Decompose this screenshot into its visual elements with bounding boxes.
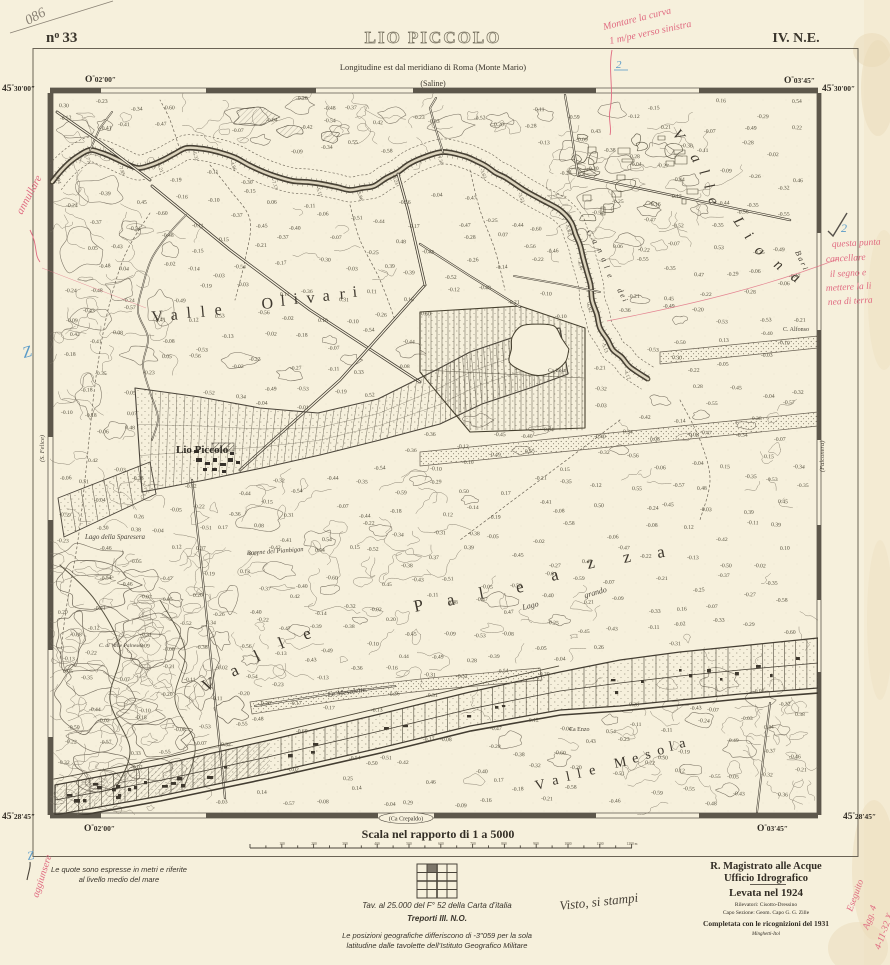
svg-text:-0.38: -0.38: [196, 645, 208, 651]
svg-text:-0.31: -0.31: [426, 693, 438, 699]
svg-text:-0.51: -0.51: [442, 576, 454, 583]
svg-text:-0.19: -0.19: [200, 283, 212, 290]
svg-text:0.36: 0.36: [778, 792, 788, 799]
svg-text:-0.21: -0.21: [535, 476, 547, 482]
svg-text:-0.11: -0.11: [211, 696, 223, 702]
svg-text:-0.54: -0.54: [374, 465, 386, 472]
svg-text:-0.52: -0.52: [474, 115, 486, 122]
svg-text:-0.36: -0.36: [681, 143, 693, 150]
svg-text:-0.33: -0.33: [428, 119, 440, 125]
svg-text:-0.03: -0.03: [213, 273, 225, 279]
svg-text:-0.57: -0.57: [100, 739, 112, 746]
svg-text:-0.34: -0.34: [793, 464, 805, 471]
svg-text:-0.50: -0.50: [674, 340, 686, 346]
svg-text:-0.55: -0.55: [637, 257, 649, 263]
svg-text:O°02′00″: O°02′00″: [84, 823, 115, 834]
svg-text:-0.03: -0.03: [595, 403, 607, 409]
svg-text:-0.11: -0.11: [697, 148, 709, 154]
svg-text:0.50: 0.50: [594, 503, 604, 509]
svg-text:-0.18: -0.18: [64, 352, 76, 358]
svg-text:-0.41: -0.41: [154, 317, 166, 324]
svg-text:-0.03: -0.03: [237, 282, 249, 288]
svg-text:0.54: 0.54: [315, 548, 325, 554]
svg-text:-0.60: -0.60: [296, 729, 308, 735]
svg-text:-0.05: -0.05: [481, 584, 493, 591]
svg-text:-0.13: -0.13: [317, 675, 329, 681]
svg-text:-0.05: -0.05: [124, 390, 136, 397]
svg-text:-0.12: -0.12: [628, 114, 640, 120]
svg-text:-0.22: -0.22: [700, 292, 712, 298]
svg-text:-0.14: -0.14: [467, 505, 479, 511]
svg-text:0.10: 0.10: [318, 318, 328, 324]
svg-text:-0.09: -0.09: [576, 137, 588, 143]
svg-text:-0.47: -0.47: [476, 597, 488, 603]
svg-text:-0.38: -0.38: [343, 624, 355, 630]
svg-text:-0.23: -0.23: [143, 370, 155, 376]
svg-text:-0.10: -0.10: [555, 314, 567, 320]
svg-text:0.15: 0.15: [219, 237, 229, 243]
svg-text:0.46: 0.46: [793, 178, 803, 184]
svg-text:0.34: 0.34: [206, 620, 216, 627]
svg-text:-0.08: -0.08: [646, 523, 658, 529]
svg-text:0.07: 0.07: [197, 741, 207, 747]
svg-text:-0.17: -0.17: [423, 736, 435, 743]
svg-text:0.31: 0.31: [284, 512, 294, 519]
svg-text:-0.22: -0.22: [193, 504, 205, 510]
svg-text:-0.19: -0.19: [489, 515, 501, 521]
svg-text:(Saline): (Saline): [420, 79, 446, 88]
svg-text:cancellare: cancellare: [826, 253, 866, 265]
svg-text:-0.11: -0.11: [630, 722, 642, 728]
svg-text:-0.31: -0.31: [669, 641, 681, 647]
svg-text:-0.43: -0.43: [690, 705, 702, 712]
svg-text:-0.02: -0.02: [232, 364, 244, 370]
svg-text:0.06: 0.06: [267, 200, 277, 206]
svg-text:-0.05: -0.05: [161, 597, 173, 603]
svg-text:-0.49: -0.49: [489, 452, 501, 458]
svg-text:-0.45: -0.45: [512, 553, 524, 559]
svg-text:-0.19: -0.19: [170, 177, 182, 184]
svg-text:-0.07: -0.07: [603, 580, 615, 586]
svg-text:0.10: 0.10: [780, 546, 790, 552]
svg-text:-0.44: -0.44: [89, 707, 101, 713]
svg-text:-0.57: -0.57: [673, 483, 685, 489]
svg-text:1100: 1100: [596, 842, 603, 846]
svg-text:-0.43: -0.43: [606, 626, 618, 633]
svg-text:-0.06: -0.06: [60, 475, 72, 482]
svg-text:900: 900: [533, 842, 539, 846]
svg-text:-0.40: -0.40: [761, 331, 773, 337]
svg-text:-0.35: -0.35: [747, 203, 759, 209]
svg-text:-0.07: -0.07: [328, 345, 340, 352]
svg-text:-0.23: -0.23: [57, 538, 69, 545]
svg-text:45°28′45″: 45°28′45″: [2, 811, 35, 822]
svg-text:no33: no33: [46, 30, 77, 46]
svg-text:0.11: 0.11: [367, 289, 377, 295]
svg-text:-0.40: -0.40: [250, 610, 262, 616]
svg-text:-0.13: -0.13: [371, 707, 383, 714]
svg-text:0.55: 0.55: [632, 486, 642, 492]
svg-text:0.07: 0.07: [120, 677, 130, 683]
svg-text:-0.43: -0.43: [412, 577, 424, 584]
svg-text:-0.46: -0.46: [609, 798, 621, 805]
svg-text:0.44: 0.44: [399, 654, 409, 660]
svg-text:-0.01: -0.01: [297, 405, 309, 411]
svg-text:-0.47: -0.47: [700, 430, 712, 437]
svg-text:Le posizioni geografiche diffe: Le posizioni geografiche differiscono di…: [342, 931, 532, 940]
svg-text:-0.38: -0.38: [401, 563, 413, 569]
svg-text:-0.14: -0.14: [674, 418, 686, 425]
svg-text:-0.28: -0.28: [744, 289, 756, 296]
svg-text:-0.13: -0.13: [275, 651, 287, 657]
svg-text:-0.44: -0.44: [403, 339, 415, 346]
svg-text:-0.24: -0.24: [66, 203, 78, 209]
svg-text:-0.57: -0.57: [783, 400, 795, 406]
svg-text:-0.08: -0.08: [163, 647, 175, 653]
svg-text:-0.30: -0.30: [97, 525, 109, 532]
svg-text:-0.52: -0.52: [180, 621, 192, 627]
svg-text:-0.60: -0.60: [554, 750, 566, 757]
svg-text:-0.35: -0.35: [560, 479, 572, 485]
svg-text:-0.20: -0.20: [570, 765, 582, 771]
svg-text:O°03′45″: O°03′45″: [784, 75, 815, 86]
svg-text:0.43: 0.43: [591, 129, 601, 135]
svg-text:-0.49: -0.49: [321, 648, 333, 654]
svg-text:-0.15: -0.15: [192, 248, 204, 255]
svg-text:-0.31: -0.31: [434, 530, 446, 537]
svg-text:-0.44: -0.44: [327, 476, 339, 482]
svg-text:-0.06: -0.06: [654, 465, 666, 471]
svg-text:0.21: 0.21: [584, 599, 594, 606]
svg-text:0.12: 0.12: [529, 717, 539, 724]
svg-text:-0.37: -0.37: [764, 748, 776, 755]
svg-text:-0.32: -0.32: [595, 386, 607, 393]
svg-text:-0.37: -0.37: [345, 105, 357, 111]
svg-text:-0.41: -0.41: [280, 538, 292, 544]
svg-text:-0.51: -0.51: [351, 215, 363, 222]
svg-text:-0.11: -0.11: [661, 728, 673, 734]
svg-text:Completata con le ricognizioni: Completata con le ricognizioni del 1931: [703, 919, 829, 928]
svg-text:Le quote sono espresse in metr: Le quote sono espresse in metri e riferi…: [51, 865, 187, 874]
svg-text:0.15: 0.15: [720, 464, 730, 471]
svg-text:800: 800: [501, 842, 507, 846]
svg-text:-0.18: -0.18: [81, 387, 93, 394]
svg-text:-0.01: -0.01: [545, 571, 557, 578]
svg-text:-0.18: -0.18: [512, 786, 524, 793]
svg-text:-0.48: -0.48: [705, 801, 717, 807]
svg-text:-0.10: -0.10: [347, 319, 359, 325]
svg-text:-0.17: -0.17: [275, 260, 287, 267]
svg-text:O°02′00″: O°02′00″: [85, 74, 116, 85]
svg-text:-0.52: -0.52: [367, 547, 379, 553]
svg-text:-0.22: -0.22: [65, 739, 77, 746]
svg-text:-0.28: -0.28: [750, 416, 762, 422]
svg-text:-0.36: -0.36: [405, 448, 417, 454]
svg-text:-0.50: -0.50: [366, 761, 378, 767]
svg-text:-0.42: -0.42: [397, 760, 409, 766]
svg-text:-0.39: -0.39: [488, 654, 500, 660]
svg-text:-0.59: -0.59: [59, 512, 71, 519]
svg-text:-0.44: -0.44: [512, 223, 524, 229]
svg-text:-0.10: -0.10: [778, 340, 790, 347]
svg-text:0.16: 0.16: [677, 606, 687, 613]
svg-text:-0.49: -0.49: [432, 654, 444, 661]
svg-text:-0.45: -0.45: [730, 385, 742, 392]
svg-text:-0.41: -0.41: [118, 122, 130, 128]
svg-text:0.15: 0.15: [350, 545, 360, 551]
svg-text:-0.26: -0.26: [375, 312, 387, 319]
svg-text:-0.35: -0.35: [81, 675, 93, 681]
svg-text:-0.12: -0.12: [448, 287, 460, 293]
svg-text:0.20: 0.20: [193, 593, 203, 599]
svg-text:-0.36: -0.36: [619, 308, 631, 314]
svg-text:-0.11: -0.11: [648, 625, 660, 631]
svg-text:-0.40: -0.40: [521, 434, 533, 440]
svg-text:-0.23: -0.23: [560, 170, 572, 177]
svg-text:-0.10: -0.10: [139, 708, 151, 714]
svg-text:-0.11: -0.11: [207, 169, 219, 176]
svg-text:0.38: 0.38: [795, 712, 805, 718]
svg-text:-0.02: -0.02: [265, 331, 277, 338]
svg-text:-0.11: -0.11: [328, 366, 340, 373]
svg-text:-0.03: -0.03: [114, 467, 126, 474]
svg-text:Minghetti-Itol: Minghetti-Itol: [751, 932, 781, 937]
svg-text:-0.12: -0.12: [88, 625, 100, 632]
svg-text:-0.20: -0.20: [538, 672, 550, 678]
svg-text:-0.51: -0.51: [380, 755, 392, 762]
svg-text:-0.16: -0.16: [176, 194, 188, 201]
svg-text:-0.09: -0.09: [612, 596, 624, 602]
svg-text:-0.27: -0.27: [549, 563, 561, 569]
svg-text:-0.54: -0.54: [592, 210, 604, 217]
svg-text:0.20: 0.20: [58, 609, 68, 616]
svg-text:0.17: 0.17: [494, 777, 504, 784]
svg-text:-0.25: -0.25: [367, 250, 379, 256]
svg-text:-0.60: -0.60: [419, 311, 431, 318]
svg-text:-0.45: -0.45: [256, 223, 268, 230]
svg-text:-0.46: -0.46: [100, 546, 112, 552]
svg-text:0.33: 0.33: [354, 370, 364, 376]
svg-text:-0.11: -0.11: [192, 223, 204, 229]
svg-text:-0.04: -0.04: [256, 401, 268, 407]
svg-text:-0.27: -0.27: [744, 592, 756, 598]
svg-text:-0.07: -0.07: [774, 437, 786, 443]
svg-text:-0.30: -0.30: [319, 257, 331, 264]
svg-text:-0.08: -0.08: [174, 727, 186, 733]
svg-text:-0.21: -0.21: [628, 294, 640, 300]
svg-text:0.45: 0.45: [664, 296, 674, 303]
svg-text:-0.32: -0.32: [529, 763, 541, 769]
svg-text:-0.32: -0.32: [58, 760, 70, 766]
svg-text:0.12: 0.12: [443, 512, 453, 519]
svg-text:-0.43: -0.43: [83, 308, 95, 314]
svg-text:-0.18: -0.18: [135, 715, 147, 721]
svg-text:-0.44: -0.44: [718, 200, 730, 207]
svg-text:-0.42: -0.42: [716, 537, 728, 543]
svg-text:0.13: 0.13: [719, 338, 729, 344]
svg-text:-0.54: -0.54: [363, 327, 375, 334]
svg-text:45°30′00″: 45°30′00″: [2, 83, 35, 94]
svg-text:-0.04: -0.04: [94, 498, 106, 504]
svg-text:-0.19: -0.19: [203, 571, 215, 578]
svg-text:-0.17: -0.17: [290, 701, 302, 707]
svg-text:-0.32: -0.32: [273, 478, 285, 484]
svg-text:-0.52: -0.52: [672, 223, 684, 229]
svg-text:-0.11: -0.11: [427, 592, 439, 599]
svg-text:-0.06: -0.06: [317, 211, 329, 218]
svg-text:0.12: 0.12: [675, 768, 685, 775]
svg-text:-0.56: -0.56: [524, 244, 536, 250]
svg-text:-0.35: -0.35: [664, 266, 676, 272]
svg-text:-0.04: -0.04: [266, 117, 278, 124]
svg-text:(Falconera): (Falconera): [819, 441, 826, 472]
svg-text:-0.16: -0.16: [386, 665, 398, 672]
svg-text:0.45: 0.45: [382, 582, 392, 588]
svg-text:-0.22: -0.22: [638, 247, 650, 254]
svg-text:1000: 1000: [564, 842, 571, 846]
svg-text:(Ca Crepaldo): (Ca Crepaldo): [389, 816, 423, 823]
svg-text:-0.53: -0.53: [647, 347, 659, 354]
svg-text:-0.15: -0.15: [244, 189, 256, 195]
svg-text:-0.25: -0.25: [612, 199, 624, 205]
svg-text:-0.29: -0.29: [430, 479, 442, 486]
svg-text:-0.35: -0.35: [766, 581, 778, 587]
svg-text:-0.02: -0.02: [754, 563, 766, 570]
svg-text:-0.42: -0.42: [639, 415, 651, 421]
svg-text:-0.12: -0.12: [185, 484, 197, 490]
svg-text:-0.21: -0.21: [594, 365, 606, 372]
svg-text:-0.09: -0.09: [138, 643, 150, 650]
svg-text:il segno e: il segno e: [830, 268, 867, 280]
svg-text:-0.53: -0.53: [474, 633, 486, 639]
svg-text:100: 100: [279, 842, 285, 846]
svg-text:0.14: 0.14: [352, 785, 362, 792]
svg-text:-0.07: -0.07: [706, 604, 718, 610]
svg-text:0.48: 0.48: [125, 425, 135, 432]
svg-text:-0.02: -0.02: [98, 718, 110, 724]
svg-text:-0.26: -0.26: [213, 612, 225, 618]
svg-text:500: 500: [406, 842, 412, 846]
svg-text:-0.35: -0.35: [797, 483, 809, 489]
svg-text:-0.34: -0.34: [131, 106, 143, 113]
svg-text:-0.56: -0.56: [258, 310, 270, 316]
svg-text:-0.32: -0.32: [792, 390, 804, 396]
svg-text:-0.09: -0.09: [66, 318, 78, 324]
svg-text:-0.50: -0.50: [720, 563, 732, 569]
svg-text:-0.40: -0.40: [476, 769, 488, 775]
svg-text:-0.36: -0.36: [351, 666, 363, 672]
svg-text:-0.28: -0.28: [489, 744, 501, 750]
svg-text:-0.21: -0.21: [541, 796, 553, 803]
svg-text:-0.54: -0.54: [497, 668, 509, 675]
svg-text:-0.46: -0.46: [121, 582, 133, 588]
svg-text:-0.36: -0.36: [424, 432, 436, 438]
svg-text:400: 400: [374, 842, 380, 846]
svg-text:0.37: 0.37: [196, 546, 206, 552]
svg-text:-0.56: -0.56: [737, 209, 749, 216]
svg-text:-0.17: -0.17: [408, 224, 420, 230]
svg-text:-0.60: -0.60: [530, 226, 542, 233]
svg-text:Longitudine est dal meridiano: Longitudine est dal meridiano di Roma (M…: [340, 62, 526, 72]
svg-text:-0.44: -0.44: [239, 491, 251, 497]
svg-text:-0.53: -0.53: [760, 317, 772, 324]
svg-text:0.42: 0.42: [290, 594, 300, 600]
svg-text:-0.09: -0.09: [291, 149, 303, 155]
svg-text:-0.48: -0.48: [99, 263, 111, 270]
svg-text:a: a: [322, 287, 331, 305]
svg-text:0.20: 0.20: [386, 617, 396, 623]
svg-text:-0.53: -0.53: [716, 319, 728, 326]
svg-text:-0.58: -0.58: [381, 148, 393, 155]
svg-text:-0.42: -0.42: [301, 125, 313, 131]
svg-text:-0.31: -0.31: [424, 672, 436, 679]
svg-text:-0.33: -0.33: [649, 609, 661, 615]
svg-text:-0.53: -0.53: [297, 386, 309, 393]
svg-text:-0.47: -0.47: [490, 726, 502, 732]
svg-text:-0.15: -0.15: [261, 499, 273, 506]
svg-text:-0.40: -0.40: [542, 593, 554, 599]
svg-text:0.55: 0.55: [348, 140, 358, 146]
svg-text:0.30: 0.30: [672, 355, 682, 362]
svg-text:0.39: 0.39: [464, 545, 474, 551]
svg-text:-0.32: -0.32: [456, 674, 468, 680]
svg-text:-0.34: -0.34: [736, 433, 748, 439]
svg-text:-0.54: -0.54: [349, 755, 361, 762]
svg-text:-0.21: -0.21: [94, 606, 106, 612]
svg-text:0.34: 0.34: [236, 394, 246, 401]
svg-text:-0.45: -0.45: [405, 632, 417, 638]
svg-text:0.29: 0.29: [403, 800, 413, 807]
svg-text:-0.59: -0.59: [568, 115, 580, 121]
svg-text:0.54: 0.54: [322, 537, 332, 543]
svg-text:0.44: 0.44: [764, 724, 774, 731]
svg-text:-0.08: -0.08: [440, 737, 452, 743]
svg-text:-0.48: -0.48: [252, 716, 264, 723]
svg-text:-0.07: -0.07: [704, 129, 716, 135]
svg-text:-0.47: -0.47: [618, 545, 630, 552]
svg-text:-0.47: -0.47: [161, 576, 173, 582]
svg-text:-0.22: -0.22: [688, 368, 700, 374]
svg-text:Levata nel 1924: Levata nel 1924: [729, 887, 803, 899]
svg-text:-0.46: -0.46: [547, 248, 559, 255]
svg-text:-0.23: -0.23: [618, 737, 630, 743]
svg-text:-0.55: -0.55: [706, 401, 718, 407]
svg-text:0.42: 0.42: [373, 120, 383, 126]
svg-text:-0.04: -0.04: [763, 394, 775, 400]
svg-text:LIO PICCOLO: LIO PICCOLO: [365, 28, 502, 47]
svg-text:-0.60: -0.60: [784, 630, 796, 636]
svg-text:0.45: 0.45: [778, 499, 788, 505]
svg-text:-0.57: -0.57: [283, 801, 295, 807]
svg-text:-0.47: -0.47: [279, 626, 291, 632]
svg-text:latitudine dalle tavolette del: latitudine dalle tavolette dell’Istituto…: [347, 941, 528, 950]
svg-text:0.47: 0.47: [694, 272, 704, 279]
svg-text:-0.52: -0.52: [203, 390, 215, 397]
svg-text:-0.34: -0.34: [321, 145, 333, 151]
svg-text:-0.23: -0.23: [413, 115, 425, 121]
svg-text:0.46: 0.46: [426, 780, 436, 786]
svg-text:0.42: 0.42: [70, 332, 80, 338]
svg-text:-0.02: -0.02: [674, 621, 686, 628]
svg-text:-0.59: -0.59: [395, 490, 407, 496]
svg-text:-0.58: -0.58: [563, 521, 575, 527]
svg-text:0.16: 0.16: [404, 297, 414, 303]
svg-text:0.04: 0.04: [119, 266, 129, 273]
svg-text:0.08: 0.08: [650, 437, 660, 443]
svg-text:-0.07: -0.07: [707, 707, 719, 714]
svg-text:0.28: 0.28: [693, 384, 703, 390]
svg-text:-0.07: -0.07: [337, 504, 349, 510]
